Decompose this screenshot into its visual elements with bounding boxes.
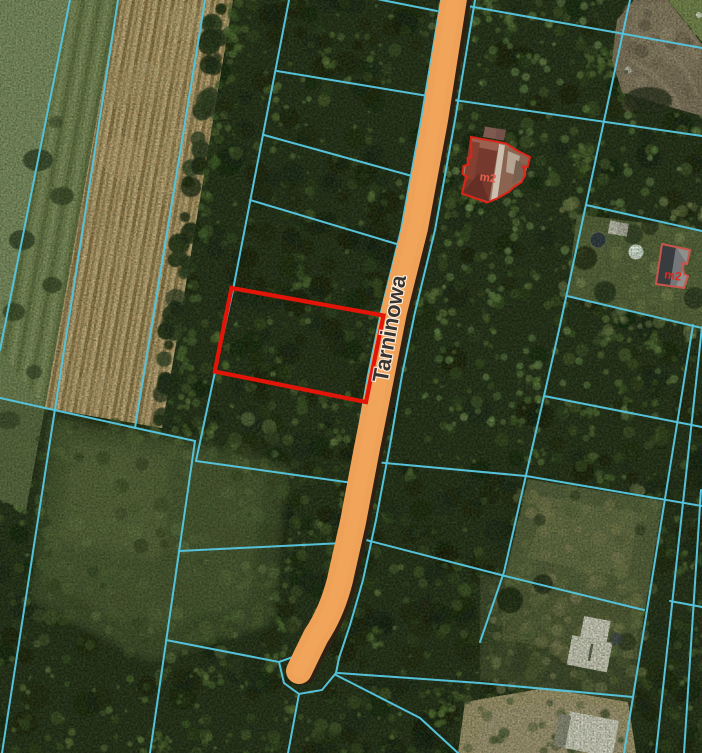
svg-text:m2: m2 xyxy=(663,267,683,284)
svg-text:m2: m2 xyxy=(479,171,497,185)
